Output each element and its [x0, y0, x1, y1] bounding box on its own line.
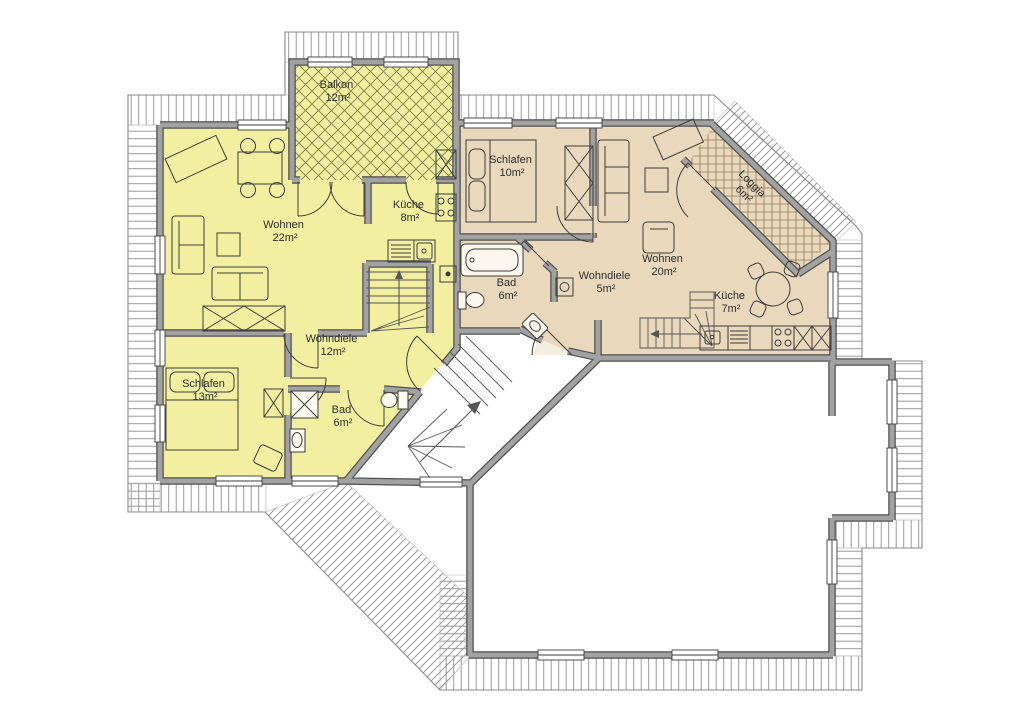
window [155, 405, 165, 442]
roof-band-bottom [440, 656, 862, 690]
window [464, 118, 512, 128]
window [538, 650, 584, 660]
window [384, 57, 428, 67]
boiler-dot [446, 272, 451, 277]
window [828, 272, 838, 318]
room-label-bad-left: Bad 6m² [332, 404, 355, 429]
roof-band-southwest-diagonal [265, 482, 470, 690]
window [887, 448, 897, 492]
window [238, 120, 286, 130]
window [887, 380, 897, 424]
bathroom-sink [290, 429, 305, 452]
balcony-crosshatch [292, 62, 456, 180]
stair-direction-arrow [420, 408, 474, 462]
roof-band-left [128, 125, 160, 512]
toilet [458, 292, 484, 309]
roof-band-below-bay [832, 520, 922, 548]
room-label-bad-right: Bad 6m² [497, 277, 520, 302]
bathtub [461, 244, 523, 276]
window [308, 57, 352, 67]
window [292, 476, 338, 486]
window [827, 540, 837, 584]
window [672, 650, 718, 660]
window [155, 330, 165, 366]
floor-plan-drawing: Wohnen 22m² Küche 8m² Balkon 12m² Wohndi… [0, 0, 1020, 720]
window [216, 476, 262, 486]
roof-band-below-left-apartment [128, 483, 266, 512]
window [155, 236, 165, 274]
window [420, 477, 462, 487]
floor-plan-page: Wohnen 22m² Küche 8m² Balkon 12m² Wohndi… [0, 0, 1020, 720]
shower [291, 391, 318, 418]
window [556, 118, 602, 128]
